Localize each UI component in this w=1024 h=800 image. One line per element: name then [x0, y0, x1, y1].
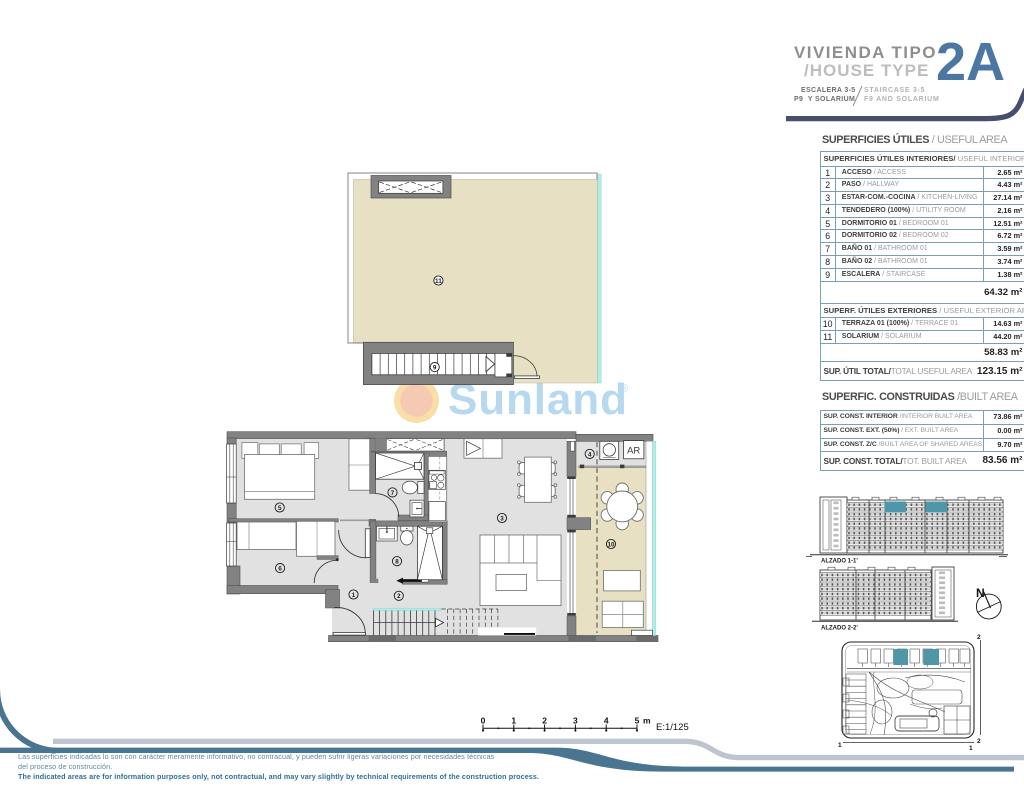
- svg-text:1: 1: [969, 745, 973, 752]
- svg-text:3: 3: [500, 515, 504, 522]
- svg-text:1: 1: [838, 742, 842, 749]
- svg-text:1: 1: [352, 592, 356, 599]
- svg-text:1: 1: [511, 716, 516, 726]
- svg-text:9: 9: [433, 365, 437, 372]
- svg-text:0: 0: [481, 716, 486, 726]
- svg-text:ALZADO 1-1': ALZADO 1-1': [821, 559, 858, 565]
- svg-text:2: 2: [977, 738, 981, 745]
- svg-text:5: 5: [635, 716, 640, 726]
- svg-text:2: 2: [397, 593, 401, 600]
- svg-text:5: 5: [278, 505, 282, 512]
- svg-text:10: 10: [608, 541, 615, 548]
- svg-text:AR: AR: [627, 446, 640, 457]
- svg-text:6: 6: [278, 566, 282, 573]
- svg-text:ALZADO 2-2': ALZADO 2-2': [821, 626, 858, 632]
- svg-text:3: 3: [573, 716, 578, 726]
- svg-text:7: 7: [391, 490, 395, 497]
- svg-text:11: 11: [435, 278, 442, 285]
- svg-text:4: 4: [588, 451, 592, 458]
- svg-text:m: m: [643, 716, 651, 726]
- svg-text:E:1/125: E:1/125: [656, 722, 689, 733]
- svg-text:2: 2: [542, 716, 547, 726]
- svg-text:8: 8: [395, 559, 399, 566]
- svg-text:4: 4: [604, 716, 609, 726]
- svg-text:2: 2: [977, 634, 981, 641]
